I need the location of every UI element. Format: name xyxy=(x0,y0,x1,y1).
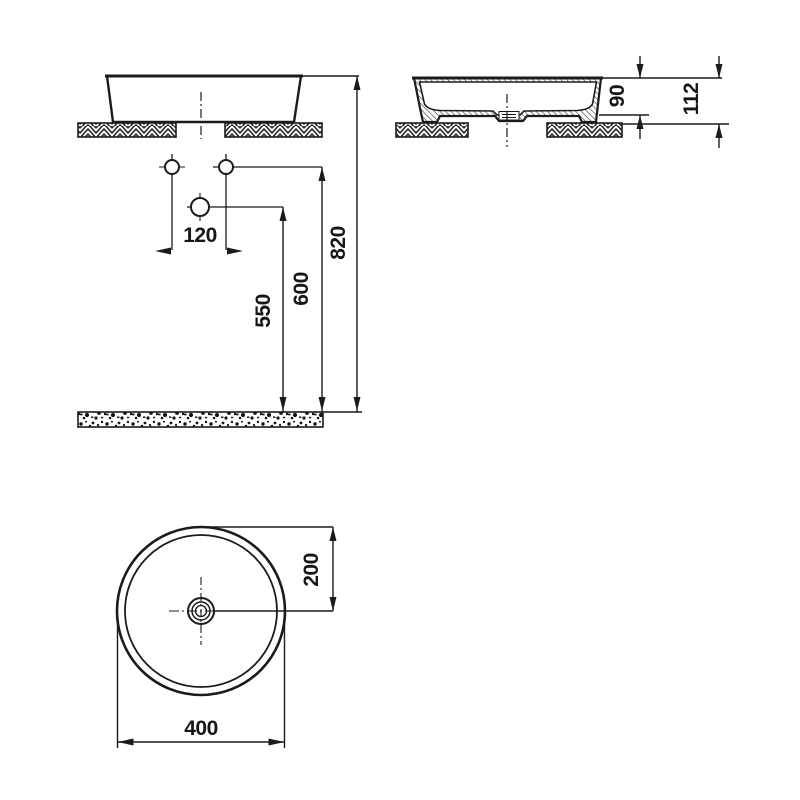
technical-drawing: 120 550 600 820 xyxy=(0,0,800,800)
countertop-left-hatch xyxy=(78,123,176,137)
mounting-hole-left xyxy=(165,160,179,174)
dim-label-90: 90 xyxy=(606,85,629,107)
dim-label-820: 820 xyxy=(327,226,350,260)
plan-view: 200 400 xyxy=(117,527,337,748)
dim-label-112: 112 xyxy=(680,83,703,115)
front-view: 120 550 600 820 xyxy=(78,76,362,427)
floor-hatch xyxy=(78,412,323,427)
mounting-hole-right xyxy=(219,160,233,174)
drawing-canvas: 120 550 600 820 xyxy=(0,0,800,800)
dim-label-120: 120 xyxy=(183,224,217,247)
dim-label-400: 400 xyxy=(184,717,218,740)
basin-front-outline xyxy=(107,76,301,122)
side-countertop-left-hatch xyxy=(396,123,468,137)
mounting-hole-center xyxy=(191,198,209,216)
dim-label-200: 200 xyxy=(300,553,323,587)
drain-fitting-detail xyxy=(499,112,519,121)
countertop-right-hatch xyxy=(225,123,322,137)
dim-label-550: 550 xyxy=(252,294,275,328)
dim-label-600: 600 xyxy=(290,272,313,306)
side-view: 90 112 xyxy=(396,56,729,148)
side-countertop-right-hatch xyxy=(547,123,622,137)
